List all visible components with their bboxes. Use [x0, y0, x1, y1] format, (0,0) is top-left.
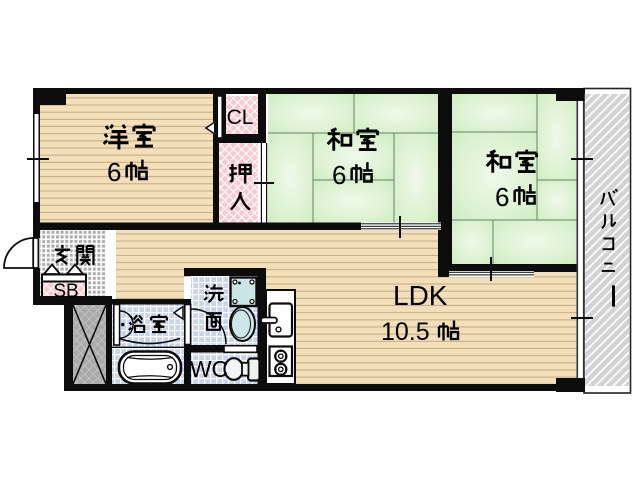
- svg-text:SB: SB: [53, 281, 78, 302]
- svg-text:6: 6: [495, 182, 509, 212]
- svg-text:WC: WC: [190, 356, 228, 382]
- svg-text:LDK: LDK: [393, 280, 448, 311]
- svg-text:10.5: 10.5: [381, 318, 430, 346]
- svg-text:6: 6: [332, 160, 346, 190]
- svg-text:6: 6: [107, 157, 121, 187]
- svg-text:CL: CL: [227, 106, 254, 129]
